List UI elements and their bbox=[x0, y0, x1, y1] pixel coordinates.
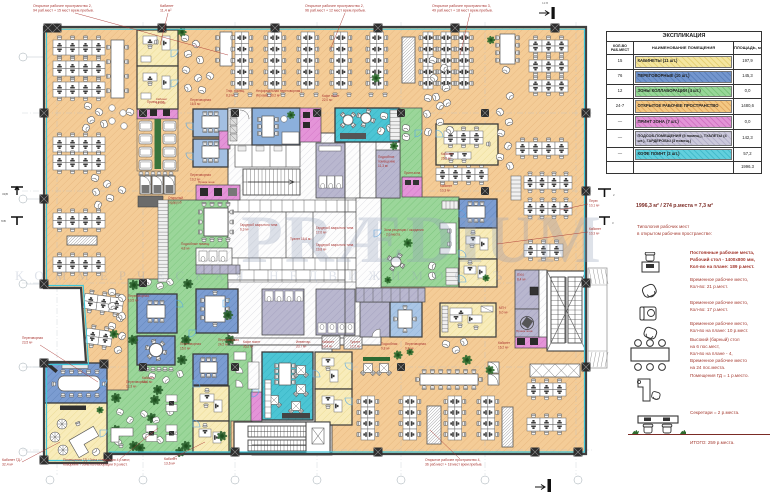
svg-text:11,4 м²: 11,4 м² bbox=[160, 9, 172, 13]
svg-text:24,2 м²: 24,2 м² bbox=[218, 343, 228, 347]
svg-text:Кабинет: Кабинет bbox=[589, 227, 602, 231]
svg-text:19,8 м²: 19,8 м² bbox=[316, 248, 326, 252]
svg-text:13,6 м²: 13,6 м² bbox=[142, 380, 152, 384]
svg-text:Подсобная: Подсобная bbox=[381, 342, 398, 346]
svg-text:- 2 р.места.: - 2 р.места. bbox=[384, 233, 401, 237]
svg-text:10,5 м²: 10,5 м² bbox=[128, 299, 138, 303]
svg-text:Переговорная: Переговорная bbox=[22, 336, 43, 340]
svg-text:49 раб.мест + 18 мест врем.пре: 49 раб.мест + 18 мест врем.пребыв. bbox=[432, 9, 493, 13]
svg-text:Кофе поинт: Кофе поинт bbox=[243, 340, 261, 344]
svg-text:Кабинет: Кабинет bbox=[322, 340, 335, 344]
svg-text:Открытое рабочее пространство: Открытое рабочее пространство 3, bbox=[432, 4, 491, 8]
svg-text:Кабинет ГД /: Кабинет ГД / bbox=[2, 458, 22, 462]
svg-text:13,6 м²: 13,6 м² bbox=[164, 462, 176, 466]
svg-text:Гардероб закрытого типа: Гардероб закрытого типа bbox=[316, 226, 354, 230]
svg-text:8,4 м²: 8,4 м² bbox=[517, 278, 526, 282]
svg-text:Гардероб закрытого типа: Гардероб закрытого типа bbox=[316, 243, 354, 247]
svg-text:10,4 м²: 10,4 м² bbox=[322, 345, 332, 349]
svg-text:МГН: МГН bbox=[499, 306, 506, 310]
svg-text:Открытое рабочее пространство: Открытое рабочее пространство 4, bbox=[425, 458, 480, 462]
svg-text:гардероб: гардероб bbox=[168, 201, 182, 205]
svg-text:Кабинет: Кабинет bbox=[498, 341, 511, 345]
svg-text:Переговорная: Переговорная bbox=[180, 342, 201, 346]
svg-text:4,8 м²: 4,8 м² bbox=[181, 247, 190, 251]
svg-text:10,3 м²: 10,3 м² bbox=[440, 189, 450, 193]
svg-text:Тлф. помещ.: Тлф. помещ. bbox=[226, 89, 245, 93]
svg-text:17,2 м²: 17,2 м² bbox=[350, 345, 360, 349]
svg-text:2: 2 bbox=[613, 193, 615, 197]
svg-text:Открытый: Открытый bbox=[168, 196, 183, 200]
svg-text:Гардероб закрытого типа: Гардероб закрытого типа bbox=[240, 223, 278, 227]
svg-text:12,3 м²: 12,3 м² bbox=[126, 385, 136, 389]
svg-text:КОММЕРЧЕСКАЯ НЕДВИЖИМОСТЪ: КОММЕРЧЕСКАЯ НЕДВИЖИМОСТЪ bbox=[15, 268, 513, 283]
svg-text:12:В: 12:В bbox=[542, 1, 548, 5]
svg-text:Кабинет: Кабинет bbox=[441, 152, 454, 156]
svg-text:17,0 м²: 17,0 м² bbox=[316, 231, 326, 235]
svg-text:11,3 м²: 11,3 м² bbox=[378, 164, 388, 168]
svg-text:94 раб.мест + 15 мест врем.пре: 94 раб.мест + 15 мест врем.пребыв. bbox=[33, 9, 94, 13]
svg-text:Переговорная: Переговорная bbox=[190, 173, 211, 177]
svg-text:Кабинет: Кабинет bbox=[160, 4, 174, 8]
svg-text:22,0 м²: 22,0 м² bbox=[322, 98, 332, 102]
svg-text:6,0 м²: 6,0 м² bbox=[499, 311, 508, 315]
svg-text:26,5 м²: 26,5 м² bbox=[441, 157, 451, 161]
svg-text:Коворкинг / Зона коллаборации: Коворкинг / Зона коллаборации 9 р.мест. bbox=[63, 463, 128, 467]
svg-text:Кабинет: Кабинет bbox=[440, 184, 453, 188]
svg-text:32,4 м²: 32,4 м² bbox=[2, 463, 14, 467]
svg-text:ПУИ: ПУИ bbox=[517, 273, 524, 277]
svg-text:6,3 м²: 6,3 м² bbox=[240, 228, 249, 232]
svg-text:ЮВ: ЮВ bbox=[1, 219, 6, 223]
svg-text:16,5 м²: 16,5 м² bbox=[190, 102, 200, 106]
svg-text:3: 3 bbox=[612, 221, 614, 225]
svg-text:16,2 м²: 16,2 м² bbox=[498, 346, 508, 350]
svg-text:Перег.: Перег. bbox=[589, 199, 599, 203]
svg-text:Неформальная переговорная |: Неформальная переговорная | bbox=[256, 89, 302, 93]
svg-text:Переговорная: Переговорная bbox=[128, 294, 149, 298]
svg-text:15,0 м²: 15,0 м² bbox=[180, 347, 190, 351]
svg-text:Зона рецепции / ожидания: Зона рецепции / ожидания bbox=[384, 228, 424, 232]
svg-text:Подсобное: Подсобное bbox=[378, 155, 395, 159]
svg-text:Открытое рабочее пространство: Открытое рабочее пространство 2, bbox=[305, 4, 364, 8]
svg-text:Прием.зона: Прием.зона bbox=[198, 180, 215, 184]
svg-text:Подсобные помещ.: Подсобные помещ. bbox=[181, 242, 210, 246]
svg-text:Туалет 16,6 м²: Туалет 16,6 м² bbox=[290, 237, 311, 241]
svg-text:Инвентар.: Инвентар. bbox=[296, 340, 311, 344]
svg-text:10,3 м²: 10,3 м² bbox=[589, 232, 599, 236]
svg-text:9,8 м²: 9,8 м² bbox=[381, 347, 390, 351]
svg-text:Туалет: Туалет bbox=[350, 340, 361, 344]
svg-text:Переговорная: Переговорная bbox=[218, 338, 239, 342]
svg-text:Принт.зона: Принт.зона bbox=[404, 171, 421, 175]
svg-text:20,7 м²: 20,7 м² bbox=[296, 345, 306, 349]
svg-text:Прием.зона: Прием.зона bbox=[516, 329, 533, 333]
svg-text:помещение: помещение bbox=[378, 160, 395, 164]
svg-text:8,3 м²: 8,3 м² bbox=[226, 94, 235, 98]
svg-text:96 раб.мест + 12 мест врем.пре: 96 раб.мест + 12 мест врем.пребыв. bbox=[305, 9, 366, 13]
svg-text:Игровая, 30,2 м²: Игровая, 30,2 м² bbox=[256, 94, 280, 98]
svg-text:10,1 м²: 10,1 м² bbox=[589, 204, 599, 208]
svg-text:Кабинет: Кабинет bbox=[164, 457, 177, 461]
svg-text:35,2 м²: 35,2 м² bbox=[243, 345, 253, 349]
svg-text:32|В: 32|В bbox=[2, 192, 8, 196]
svg-text:Открытое рабочее пространство: Открытое рабочее пространство 2, bbox=[33, 4, 92, 8]
svg-text:23,5 м²: 23,5 м² bbox=[22, 341, 32, 345]
svg-text:Прием.зона: Прием.зона bbox=[147, 100, 165, 104]
svg-text:9,8 м²: 9,8 м² bbox=[405, 347, 414, 351]
svg-text:36 раб.мест + 18 мест врем.пре: 36 раб.мест + 18 мест врем.пребыв. bbox=[425, 463, 482, 467]
svg-text:Переговорная: Переговорная bbox=[405, 342, 426, 346]
